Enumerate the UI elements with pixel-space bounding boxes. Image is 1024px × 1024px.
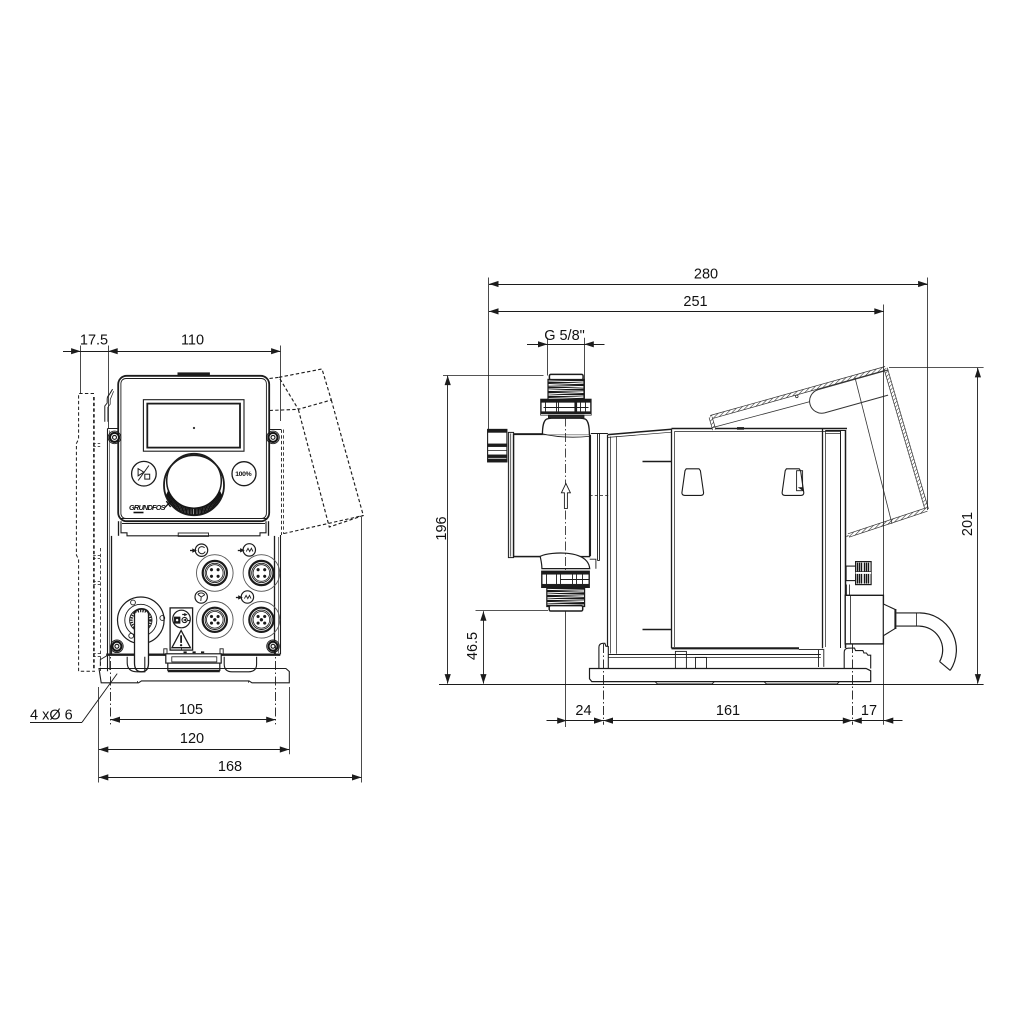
svg-text:G 5/8": G 5/8" — [544, 328, 585, 344]
svg-text:24: 24 — [575, 703, 591, 719]
svg-text:251: 251 — [683, 294, 707, 310]
svg-text:17: 17 — [861, 703, 877, 719]
svg-text:110: 110 — [181, 333, 204, 349]
svg-text:168: 168 — [218, 759, 242, 775]
svg-text:196: 196 — [434, 516, 450, 540]
svg-text:17.5: 17.5 — [80, 333, 108, 349]
svg-text:161: 161 — [716, 703, 740, 719]
svg-text:100%: 100% — [235, 471, 251, 478]
svg-text:120: 120 — [180, 731, 204, 747]
svg-text:201: 201 — [960, 512, 976, 536]
svg-text:105: 105 — [179, 702, 203, 718]
svg-text:GRUNDFOS: GRUNDFOS — [129, 503, 166, 512]
svg-text:280: 280 — [694, 267, 718, 283]
svg-text:46.5: 46.5 — [465, 632, 481, 660]
svg-text:4 xØ 6: 4 xØ 6 — [30, 708, 73, 724]
